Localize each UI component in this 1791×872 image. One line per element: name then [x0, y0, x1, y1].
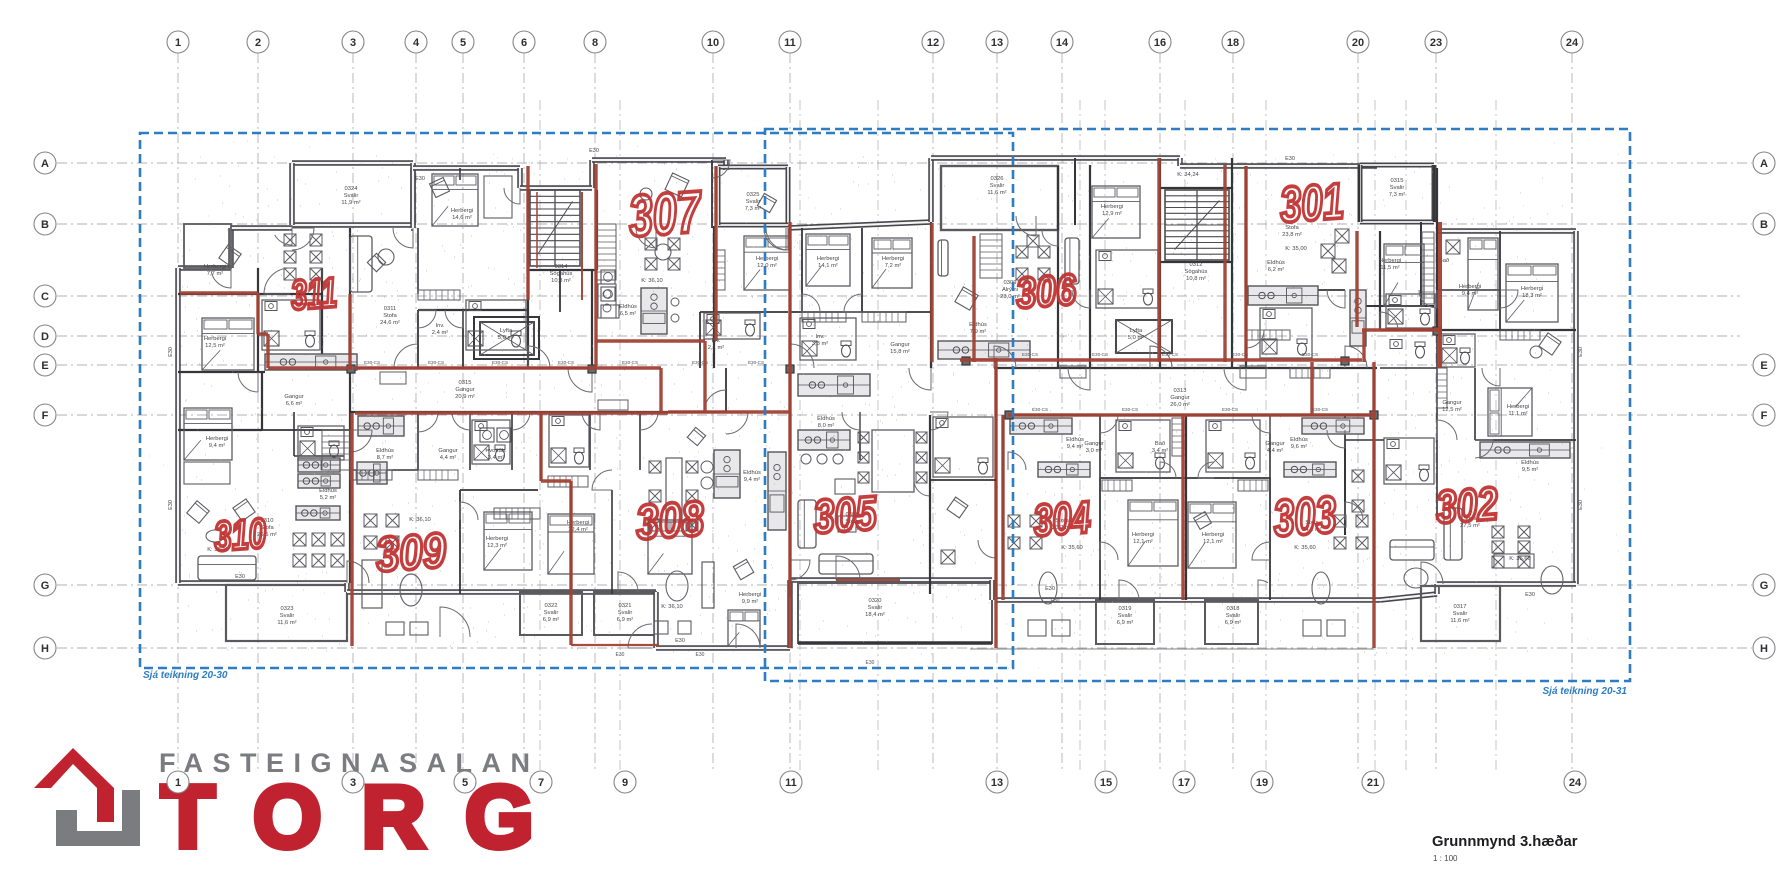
svg-text:Gangur: Gangur: [1084, 441, 1103, 447]
svg-text:Bað: Bað: [1155, 440, 1166, 447]
svg-text:F: F: [42, 410, 49, 422]
svg-text:Gangur: Gangur: [284, 394, 303, 400]
svg-text:Eldhús: Eldhús: [376, 448, 394, 454]
svg-text:302: 302: [1434, 477, 1500, 533]
svg-text:D: D: [41, 331, 49, 343]
svg-text:Herbergi: Herbergi: [739, 592, 761, 598]
svg-text:11,5 m²: 11,5 m²: [1380, 265, 1399, 271]
svg-text:Herbergi: Herbergi: [1202, 532, 1224, 538]
svg-text:Gangur: Gangur: [1170, 395, 1189, 401]
svg-text:7,3 m²: 7,3 m²: [1389, 192, 1405, 198]
svg-text:Svalir: Svalir: [1226, 613, 1241, 619]
svg-text:Eldhús: Eldhús: [319, 488, 337, 494]
svg-text:E: E: [41, 360, 48, 372]
svg-text:12,0 m²: 12,0 m²: [757, 263, 777, 269]
svg-text:24,6 m²: 24,6 m²: [380, 320, 400, 326]
svg-text:E30: E30: [168, 500, 174, 510]
svg-text:K: 34,24: K: 34,24: [1177, 172, 1199, 178]
svg-text:12,9 m²: 12,9 m²: [1102, 211, 1122, 217]
svg-text:Inv.: Inv.: [816, 334, 825, 340]
svg-text:A: A: [1760, 158, 1768, 170]
svg-text:10,8 m²: 10,8 m²: [551, 278, 571, 284]
svg-text:Gangur: Gangur: [455, 387, 474, 393]
svg-text:E30-CS: E30-CS: [1122, 407, 1138, 412]
svg-text:13: 13: [991, 777, 1003, 789]
svg-text:Lyfta: Lyfta: [1130, 328, 1143, 334]
svg-text:0314: 0314: [555, 264, 569, 270]
svg-text:E30: E30: [415, 176, 425, 182]
svg-text:K: 36,10: K: 36,10: [409, 517, 431, 523]
svg-text:7: 7: [538, 777, 544, 789]
svg-text:20: 20: [1352, 37, 1364, 49]
svg-text:6,6 m²: 6,6 m²: [286, 401, 302, 407]
svg-text:9,4 m²: 9,4 m²: [209, 443, 225, 449]
svg-text:0319: 0319: [1119, 606, 1132, 612]
svg-text:E30-CS: E30-CS: [428, 360, 444, 365]
svg-text:7,7 m²: 7,7 m²: [207, 271, 223, 277]
svg-text:G: G: [41, 580, 50, 592]
svg-text:K: 35,00: K: 35,00: [1285, 246, 1307, 252]
svg-text:Herbergi: Herbergi: [817, 256, 839, 262]
svg-text:3,4 m²: 3,4 m²: [488, 455, 504, 461]
svg-text:301: 301: [1278, 172, 1346, 233]
svg-text:B: B: [41, 219, 49, 231]
svg-text:305: 305: [812, 487, 879, 544]
svg-text:26,0 m²: 26,0 m²: [1170, 402, 1190, 408]
svg-text:Svalir: Svalir: [1118, 613, 1133, 619]
svg-text:K: 36,10: K: 36,10: [641, 278, 663, 284]
svg-text:0315: 0315: [1391, 178, 1404, 184]
svg-text:B: B: [1760, 219, 1768, 231]
svg-text:Herbergi: Herbergi: [486, 536, 508, 542]
svg-text:Eldhús: Eldhús: [1267, 260, 1285, 266]
svg-text:Svalir: Svalir: [990, 183, 1005, 189]
svg-text:20,9 m²: 20,9 m²: [455, 394, 475, 400]
svg-text:2: 2: [255, 37, 261, 49]
svg-text:E30-CS: E30-CS: [1092, 352, 1108, 357]
svg-text:12,5 m²: 12,5 m²: [1442, 407, 1462, 413]
svg-text:11: 11: [785, 777, 797, 789]
svg-text:13: 13: [991, 37, 1003, 49]
svg-text:E30: E30: [1045, 586, 1055, 592]
svg-text:1 : 100: 1 : 100: [1433, 854, 1458, 863]
svg-text:E30: E30: [589, 148, 599, 154]
svg-text:16: 16: [1154, 37, 1166, 49]
svg-text:12,5 m²: 12,5 m²: [205, 343, 225, 349]
svg-text:E30: E30: [1578, 347, 1584, 357]
svg-text:Herbergi: Herbergi: [204, 336, 226, 342]
svg-text:Herbergi: Herbergi: [1101, 204, 1123, 210]
svg-text:G: G: [1760, 580, 1769, 592]
svg-text:5,0 m²: 5,0 m²: [498, 335, 514, 341]
svg-text:0313: 0313: [1174, 388, 1187, 394]
svg-text:E30: E30: [616, 652, 625, 658]
svg-text:5,0 m²: 5,0 m²: [1128, 335, 1144, 341]
svg-text:Gangur: Gangur: [890, 342, 909, 348]
svg-text:Sjá teikning 20-31: Sjá teikning 20-31: [1543, 686, 1628, 697]
svg-text:Eldhús: Eldhús: [1290, 437, 1308, 443]
svg-text:309: 309: [374, 524, 448, 583]
svg-text:Herbergi: Herbergi: [1507, 404, 1529, 410]
svg-text:E: E: [1760, 360, 1767, 372]
svg-text:0324: 0324: [345, 186, 359, 192]
svg-text:E30: E30: [866, 660, 875, 666]
svg-text:6,5 m²: 6,5 m²: [620, 311, 636, 317]
svg-text:Sögahús: Sögahús: [1185, 269, 1208, 275]
svg-text:E30: E30: [168, 347, 174, 357]
svg-text:18,3 m²: 18,3 m²: [1522, 293, 1542, 299]
svg-text:E30-CS: E30-CS: [364, 360, 380, 365]
svg-text:E30: E30: [696, 652, 705, 658]
svg-text:8,0 m²: 8,0 m²: [818, 423, 834, 429]
svg-text:9,6 m²: 9,6 m²: [1291, 444, 1307, 450]
svg-text:11,9 m²: 11,9 m²: [341, 200, 360, 206]
svg-text:0320: 0320: [869, 598, 882, 604]
svg-text:Herbergi: Herbergi: [206, 436, 228, 442]
svg-text:7,3 m²: 7,3 m²: [745, 206, 761, 212]
svg-text:304: 304: [1032, 493, 1092, 546]
svg-text:11,1 m²: 11,1 m²: [1508, 411, 1527, 417]
svg-text:Inv.: Inv.: [436, 323, 445, 329]
svg-text:Svalir: Svalir: [344, 193, 359, 199]
svg-text:F: F: [1761, 410, 1768, 422]
svg-text:Svalir: Svalir: [618, 610, 633, 616]
svg-text:Herbergi: Herbergi: [1132, 532, 1154, 538]
svg-text:9,4 m²: 9,4 m²: [1462, 291, 1478, 297]
svg-text:11,6 m²: 11,6 m²: [1450, 618, 1469, 624]
svg-text:E30-CS: E30-CS: [1312, 407, 1328, 412]
svg-text:E30: E30: [675, 638, 685, 644]
svg-text:24: 24: [1566, 37, 1579, 49]
svg-text:E30: E30: [1285, 156, 1295, 162]
svg-text:0318: 0318: [1227, 606, 1240, 612]
svg-text:311: 311: [289, 268, 338, 318]
svg-text:15: 15: [1100, 777, 1112, 789]
svg-text:E30-CS: E30-CS: [622, 360, 638, 365]
svg-text:0315: 0315: [459, 380, 472, 386]
svg-text:Eldhús: Eldhús: [1521, 460, 1539, 466]
svg-text:K: 35,60: K: 35,60: [1509, 556, 1531, 562]
svg-text:Sjá teikning 20-30: Sjá teikning 20-30: [143, 670, 228, 681]
svg-text:19: 19: [1256, 777, 1268, 789]
svg-text:Gangur: Gangur: [1265, 441, 1284, 447]
svg-text:K: 35,60: K: 35,60: [1061, 545, 1083, 551]
svg-text:Eldhús: Eldhús: [817, 416, 835, 422]
svg-text:3: 3: [350, 777, 356, 789]
svg-text:Eldhús: Eldhús: [743, 470, 761, 476]
svg-text:303: 303: [1271, 485, 1338, 547]
svg-text:15,8 m²: 15,8 m²: [890, 349, 910, 355]
svg-text:3: 3: [350, 37, 356, 49]
svg-text:6: 6: [521, 37, 527, 49]
svg-text:Grunnmynd 3.hæðar: Grunnmynd 3.hæðar: [1432, 834, 1578, 850]
svg-text:0322: 0322: [545, 603, 558, 609]
svg-text:2,1 m²: 2,1 m²: [708, 345, 724, 351]
svg-text:0317: 0317: [1454, 604, 1467, 610]
svg-text:E30-CS: E30-CS: [748, 360, 764, 365]
svg-text:TORG: TORG: [161, 767, 574, 866]
svg-text:11: 11: [784, 37, 796, 49]
svg-text:0311: 0311: [384, 306, 396, 312]
svg-text:0325: 0325: [747, 192, 760, 198]
svg-text:10,8 m²: 10,8 m²: [1186, 276, 1206, 282]
svg-text:11,6 m²: 11,6 m²: [987, 190, 1006, 196]
svg-text:E30-CS: E30-CS: [1222, 407, 1238, 412]
svg-text:K: 35,60: K: 35,60: [1294, 545, 1316, 551]
svg-text:Þvottah.: Þvottah.: [485, 448, 507, 454]
svg-text:Eldhús: Eldhús: [969, 322, 987, 328]
svg-text:A: A: [41, 158, 49, 170]
svg-text:1: 1: [175, 777, 181, 789]
svg-text:0312: 0312: [1190, 262, 1203, 268]
svg-text:Gangur: Gangur: [438, 448, 457, 454]
svg-text:Svalir: Svalir: [746, 199, 761, 205]
svg-text:0321: 0321: [619, 603, 632, 609]
svg-text:E30: E30: [1525, 592, 1535, 598]
svg-text:8: 8: [592, 37, 598, 49]
svg-text:3,4 m²: 3,4 m²: [1152, 448, 1168, 454]
svg-text:Eldhús: Eldhús: [619, 304, 637, 310]
svg-text:Svalir: Svalir: [1453, 611, 1468, 617]
svg-text:2,4 m²: 2,4 m²: [432, 330, 448, 336]
svg-text:K: 36,10: K: 36,10: [661, 604, 683, 610]
svg-text:11,6 m²: 11,6 m²: [277, 620, 296, 626]
svg-text:0326: 0326: [991, 176, 1004, 182]
svg-text:9,5 m²: 9,5 m²: [1522, 467, 1538, 473]
svg-text:E30-CS: E30-CS: [492, 360, 508, 365]
svg-text:Herbergi: Herbergi: [1521, 286, 1543, 292]
svg-text:18: 18: [1227, 37, 1239, 49]
svg-text:Svalir: Svalir: [868, 605, 883, 611]
svg-text:Herbergi: Herbergi: [756, 256, 778, 262]
svg-text:24: 24: [1569, 777, 1582, 789]
svg-text:Herbergi: Herbergi: [1459, 284, 1481, 290]
svg-text:308: 308: [634, 492, 706, 551]
svg-text:23: 23: [1430, 37, 1442, 49]
svg-text:4,4 m²: 4,4 m²: [1267, 448, 1283, 454]
svg-text:Herbergi: Herbergi: [1379, 258, 1401, 264]
svg-text:14: 14: [1056, 37, 1069, 49]
svg-text:12,1 m²: 12,1 m²: [1203, 539, 1223, 545]
svg-text:310: 310: [212, 509, 267, 560]
svg-text:6,9 m²: 6,9 m²: [1225, 620, 1241, 626]
svg-text:17: 17: [1178, 777, 1190, 789]
svg-text:6,9 m²: 6,9 m²: [543, 617, 559, 623]
svg-text:E30-CS: E30-CS: [558, 360, 574, 365]
svg-text:14,6 m²: 14,6 m²: [452, 215, 472, 221]
svg-text:E30: E30: [1051, 598, 1060, 604]
svg-text:306: 306: [1014, 266, 1078, 318]
svg-text:Lyfta: Lyfta: [500, 328, 513, 334]
svg-text:0323: 0323: [281, 606, 294, 612]
svg-text:6,2 m²: 6,2 m²: [1268, 267, 1284, 273]
svg-text:E30-CS: E30-CS: [1302, 352, 1318, 357]
svg-text:Herbergi: Herbergi: [451, 208, 473, 214]
svg-text:12: 12: [927, 37, 939, 49]
svg-text:1: 1: [175, 37, 181, 49]
svg-text:21: 21: [1367, 777, 1379, 789]
svg-text:9,4 m²: 9,4 m²: [1067, 444, 1083, 450]
svg-text:Herbergi: Herbergi: [204, 264, 226, 270]
svg-text:3,3 m²: 3,3 m²: [812, 341, 828, 347]
svg-text:E30: E30: [1578, 500, 1584, 510]
svg-text:5,2 m²: 5,2 m²: [320, 495, 336, 501]
svg-text:5: 5: [462, 777, 468, 789]
svg-text:3,0 m²: 3,0 m²: [1086, 448, 1102, 454]
svg-text:Svalir: Svalir: [1390, 185, 1405, 191]
svg-text:18,4 m²: 18,4 m²: [865, 612, 885, 618]
svg-text:Svalir: Svalir: [280, 613, 295, 619]
svg-text:10: 10: [707, 37, 719, 49]
svg-text:7,9 m²: 7,9 m²: [970, 329, 986, 335]
svg-text:307: 307: [626, 179, 704, 249]
svg-text:8,7 m²: 8,7 m²: [377, 455, 393, 461]
svg-text:5: 5: [460, 37, 466, 49]
svg-text:E30-CS: E30-CS: [1022, 352, 1038, 357]
svg-text:12,3 m²: 12,3 m²: [487, 543, 507, 549]
svg-text:H: H: [1760, 643, 1768, 655]
svg-text:Sögahús: Sögahús: [550, 271, 573, 277]
svg-text:12,1 m²: 12,1 m²: [1133, 539, 1153, 545]
svg-text:Svalir: Svalir: [544, 610, 559, 616]
svg-text:9: 9: [622, 777, 628, 789]
svg-text:6,9 m²: 6,9 m²: [1117, 620, 1133, 626]
svg-text:H: H: [41, 643, 49, 655]
svg-text:6,9 m²: 6,9 m²: [617, 617, 633, 623]
svg-text:9,9 m²: 9,9 m²: [742, 599, 758, 605]
svg-text:4: 4: [413, 37, 420, 49]
svg-text:E30: E30: [235, 574, 245, 580]
svg-text:4,4 m²: 4,4 m²: [440, 455, 456, 461]
svg-text:9,4 m²: 9,4 m²: [744, 477, 760, 483]
svg-text:7,2 m²: 7,2 m²: [885, 263, 901, 269]
svg-text:Gangur: Gangur: [1442, 400, 1461, 406]
svg-text:C: C: [41, 291, 49, 303]
svg-text:Eldhús: Eldhús: [1066, 437, 1084, 443]
svg-text:Herbergi: Herbergi: [882, 256, 904, 262]
svg-text:14,1 m²: 14,1 m²: [818, 263, 838, 269]
svg-text:Stofa: Stofa: [383, 313, 397, 319]
